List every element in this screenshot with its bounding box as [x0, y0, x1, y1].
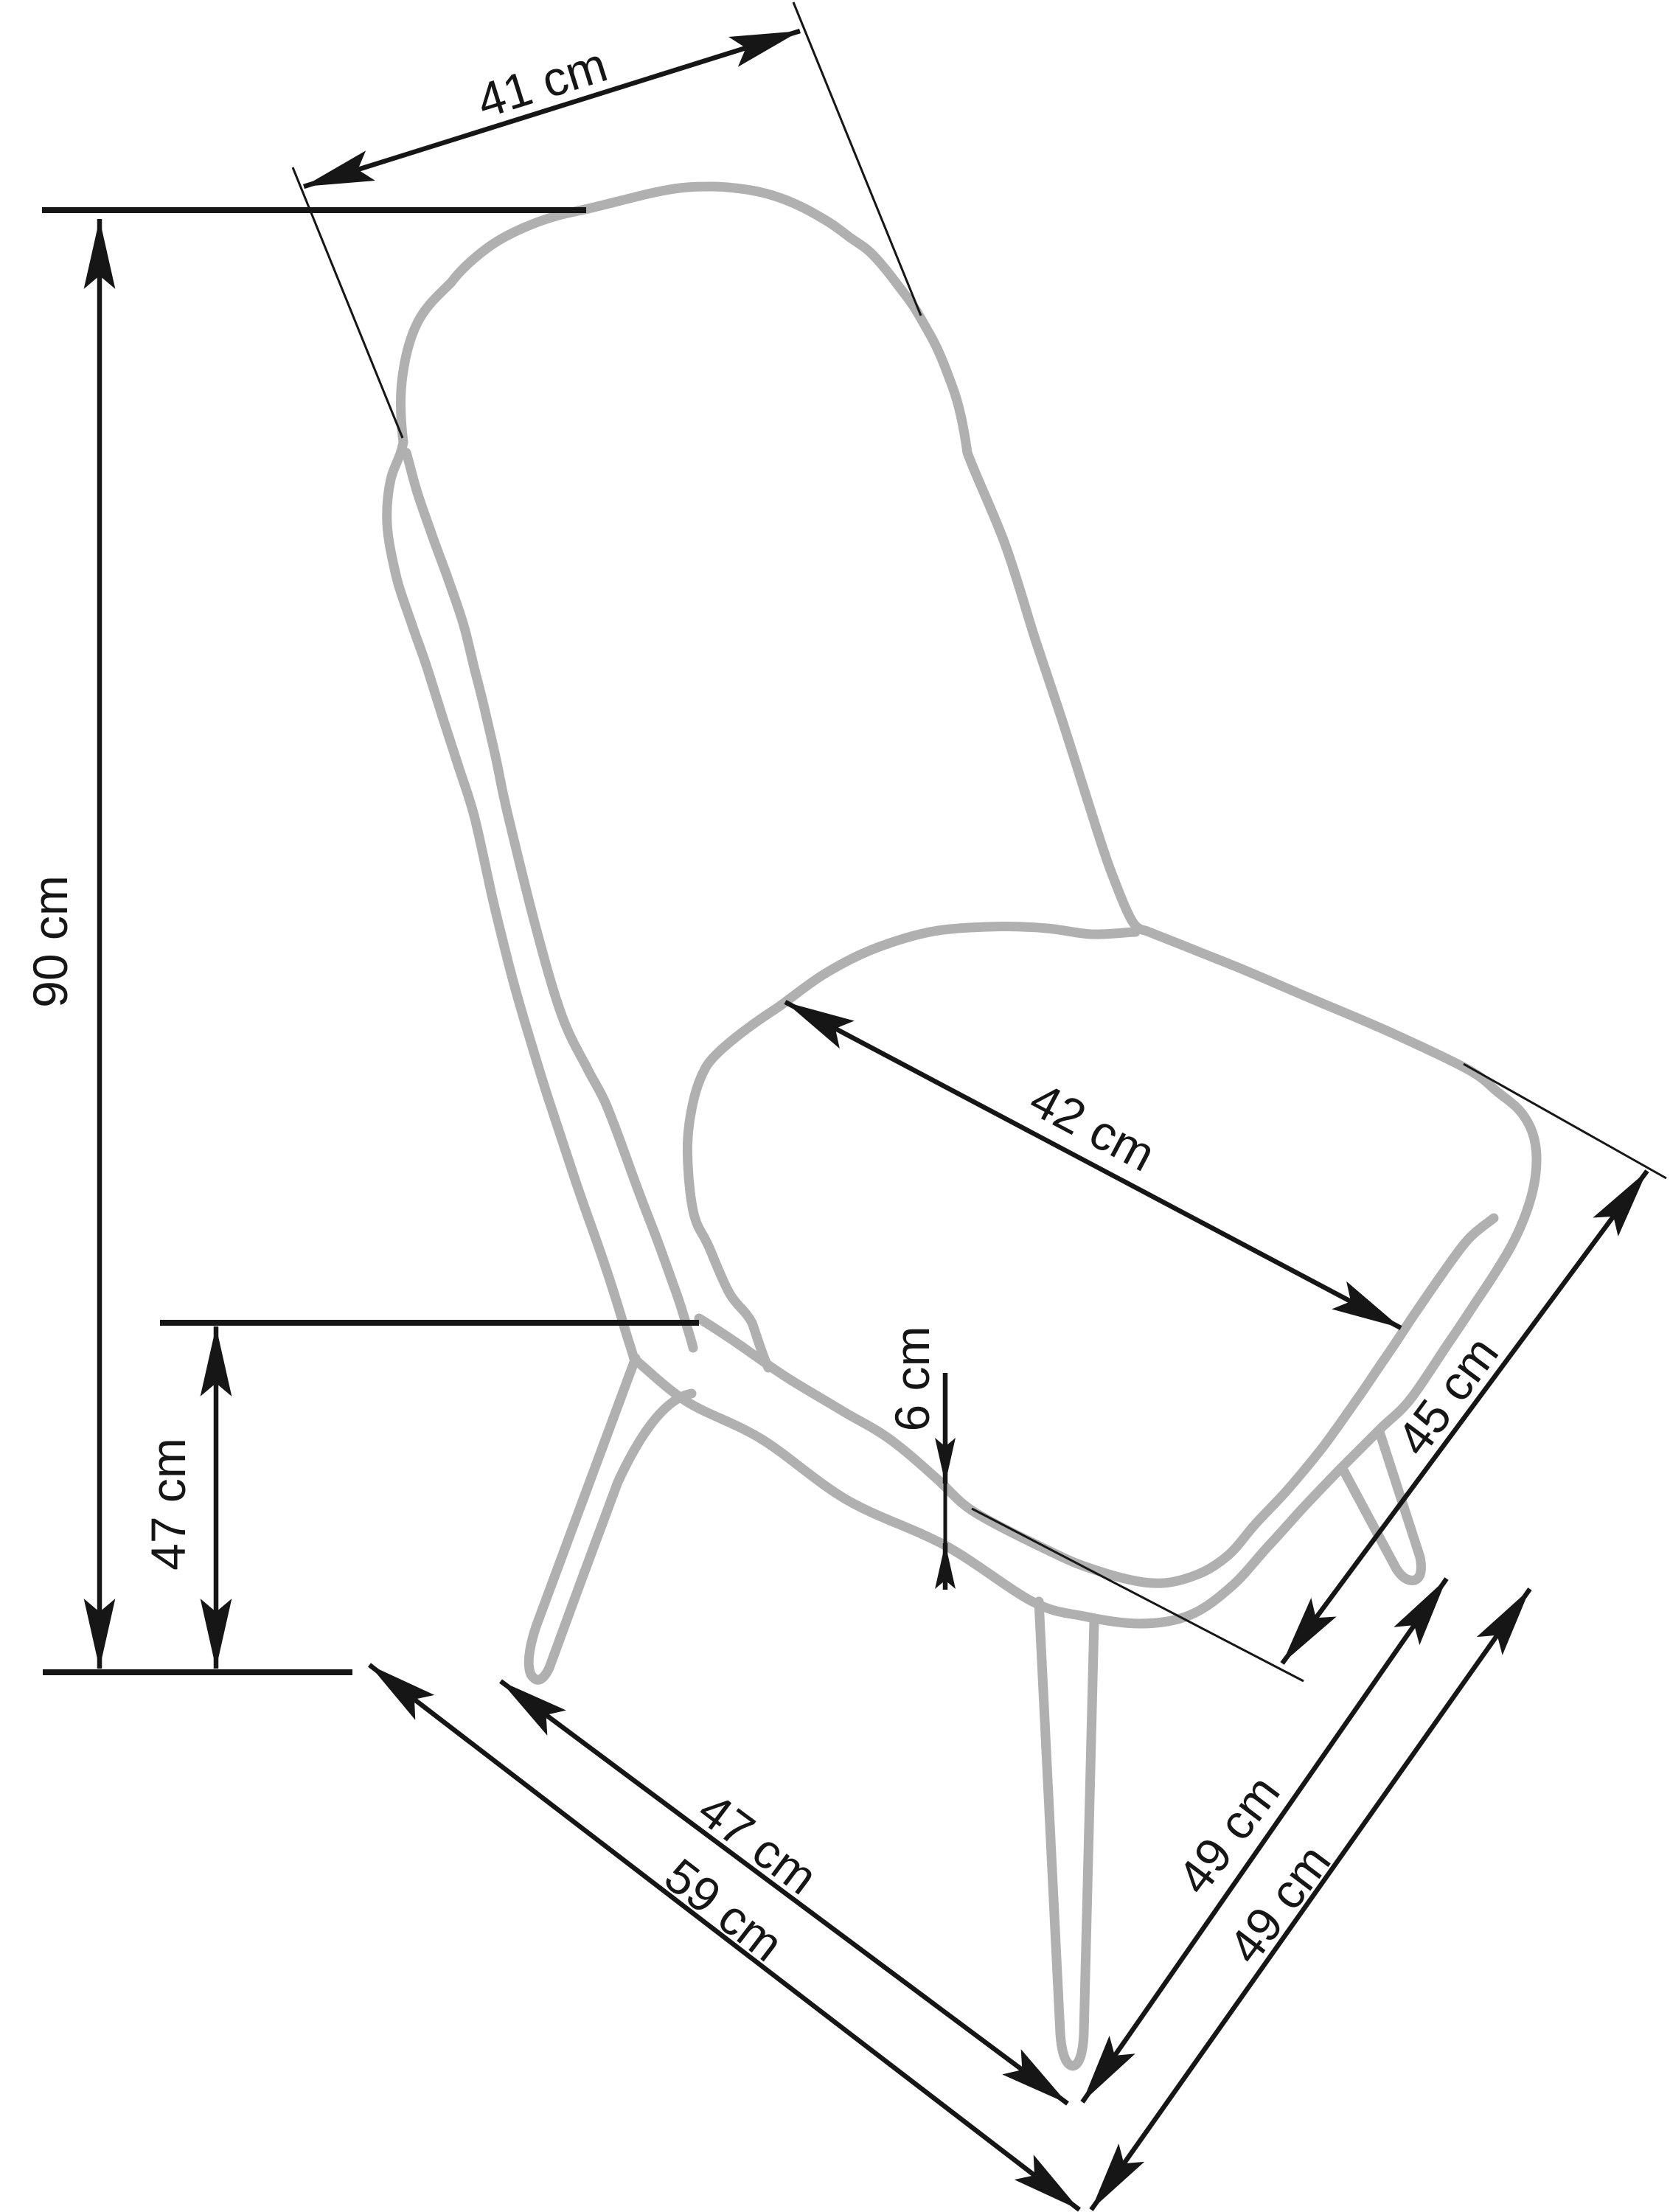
svg-text:47 cm: 47 cm	[141, 1438, 195, 1571]
svg-text:90 cm: 90 cm	[23, 875, 77, 1008]
svg-text:6 cm: 6 cm	[885, 1326, 939, 1431]
svg-text:41 cm: 41 cm	[470, 37, 613, 128]
